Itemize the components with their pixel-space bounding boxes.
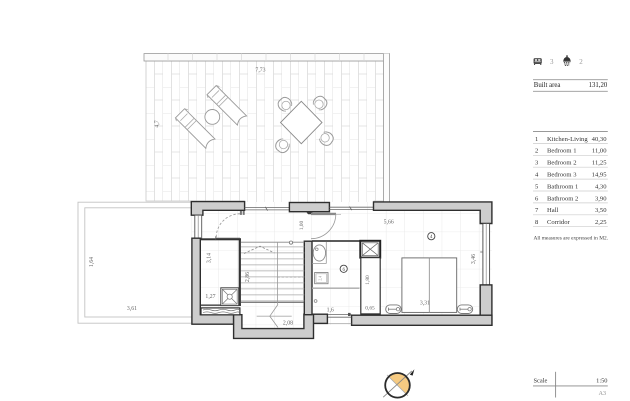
svg-text:3,14: 3,14 [207, 253, 213, 263]
svg-text:Bathroom 2: Bathroom 2 [547, 195, 578, 202]
svg-text:2,08: 2,08 [283, 321, 293, 327]
svg-text:3,50: 3,50 [595, 207, 607, 214]
svg-text:11,00: 11,00 [592, 148, 607, 155]
svg-text:Corridor: Corridor [547, 219, 571, 226]
svg-text:1,80: 1,80 [365, 275, 371, 285]
svg-text:5,66: 5,66 [384, 220, 394, 226]
svg-text:2,25: 2,25 [595, 219, 607, 226]
svg-text:1,27: 1,27 [205, 294, 215, 300]
svg-text:3: 3 [550, 58, 554, 66]
svg-text:A3: A3 [599, 391, 606, 397]
svg-text:3,46: 3,46 [471, 254, 477, 264]
svg-text:1:50: 1:50 [596, 378, 607, 385]
svg-text:Bedroom 1: Bedroom 1 [547, 148, 577, 155]
svg-text:2: 2 [535, 148, 538, 155]
svg-text:Hall: Hall [547, 207, 559, 214]
svg-text:2: 2 [579, 58, 583, 66]
svg-text:1,64: 1,64 [89, 257, 95, 267]
svg-text:Scale: Scale [534, 378, 548, 385]
svg-text:3,61: 3,61 [127, 306, 137, 312]
svg-text:Bathroom 1: Bathroom 1 [547, 183, 578, 190]
svg-text:1,00: 1,00 [299, 220, 305, 230]
svg-text:Bedroom 2: Bedroom 2 [547, 160, 577, 167]
svg-text:4,7: 4,7 [155, 120, 161, 127]
svg-text:1: 1 [535, 136, 538, 143]
svg-text:3,31: 3,31 [420, 301, 430, 307]
svg-text:11,25: 11,25 [592, 160, 607, 167]
svg-text:Kitchen-Living: Kitchen-Living [547, 136, 588, 143]
svg-text:14,95: 14,95 [592, 172, 608, 179]
svg-text:7,73: 7,73 [255, 68, 265, 74]
svg-text:131,20: 131,20 [589, 82, 608, 89]
svg-text:3,90: 3,90 [595, 195, 607, 202]
svg-text:2,86: 2,86 [245, 272, 251, 282]
svg-text:Built area: Built area [534, 82, 561, 89]
svg-text:4,30: 4,30 [595, 183, 607, 190]
svg-text:All measures are expressed in: All measures are expressed in M2. [534, 236, 609, 242]
svg-text:0,65: 0,65 [365, 306, 375, 312]
svg-text:1,6: 1,6 [327, 308, 334, 314]
svg-text:Bedroom 3: Bedroom 3 [547, 172, 577, 179]
svg-text:40,30: 40,30 [592, 136, 608, 143]
